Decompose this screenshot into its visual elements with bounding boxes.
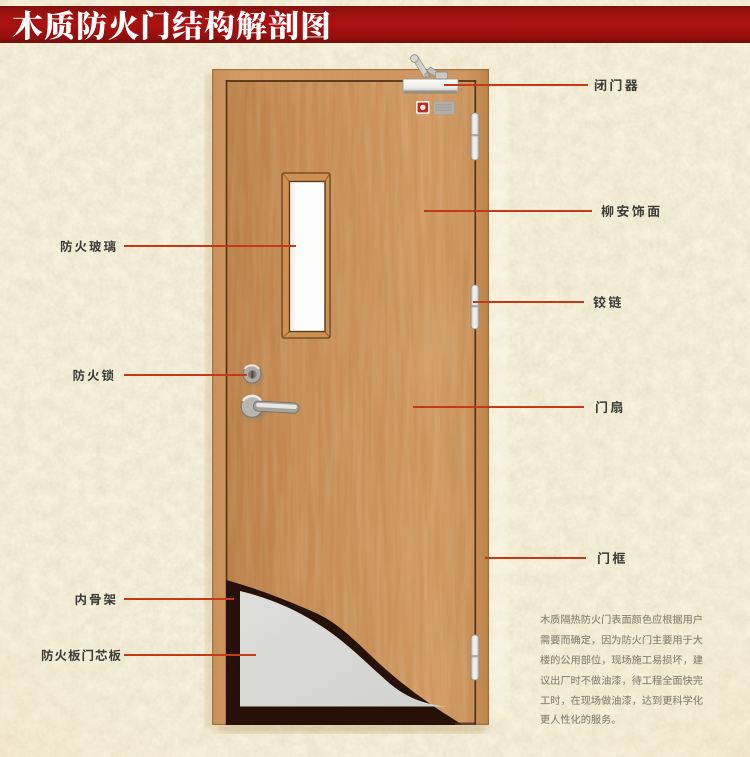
svg-text:防火玻璃: 防火玻璃 [60, 236, 118, 255]
svg-text:门框: 门框 [597, 548, 628, 567]
svg-text:门扇: 门扇 [595, 397, 626, 416]
svg-text:内骨架: 内骨架 [74, 589, 118, 608]
svg-text:防火锁: 防火锁 [72, 365, 116, 384]
svg-text:防火板门芯板: 防火板门芯板 [41, 645, 122, 664]
svg-text:更人性化的服务。: 更人性化的服务。 [540, 711, 622, 726]
svg-text:需要而确定，因为防火门主要用于大: 需要而确定，因为防火门主要用于大 [540, 632, 703, 647]
svg-text:楼的公用部位，现场施工易损坏，建: 楼的公用部位，现场施工易损坏，建 [540, 652, 703, 667]
svg-text:议出厂时不做油漆，待工程全面快完: 议出厂时不做油漆，待工程全面快完 [540, 672, 703, 687]
svg-text:铰链: 铰链 [593, 292, 624, 311]
svg-text:闭门器: 闭门器 [594, 75, 640, 94]
svg-text:木质防火门结构解剖图: 木质防火门结构解剖图 [12, 1, 332, 46]
svg-text:柳安饰面: 柳安饰面 [601, 201, 663, 220]
svg-text:木质隔热防火门表面颜色应根据用户: 木质隔热防火门表面颜色应根据用户 [540, 611, 703, 626]
svg-text:工时，在现场做油漆，达到更科学化: 工时，在现场做油漆，达到更科学化 [540, 692, 703, 707]
